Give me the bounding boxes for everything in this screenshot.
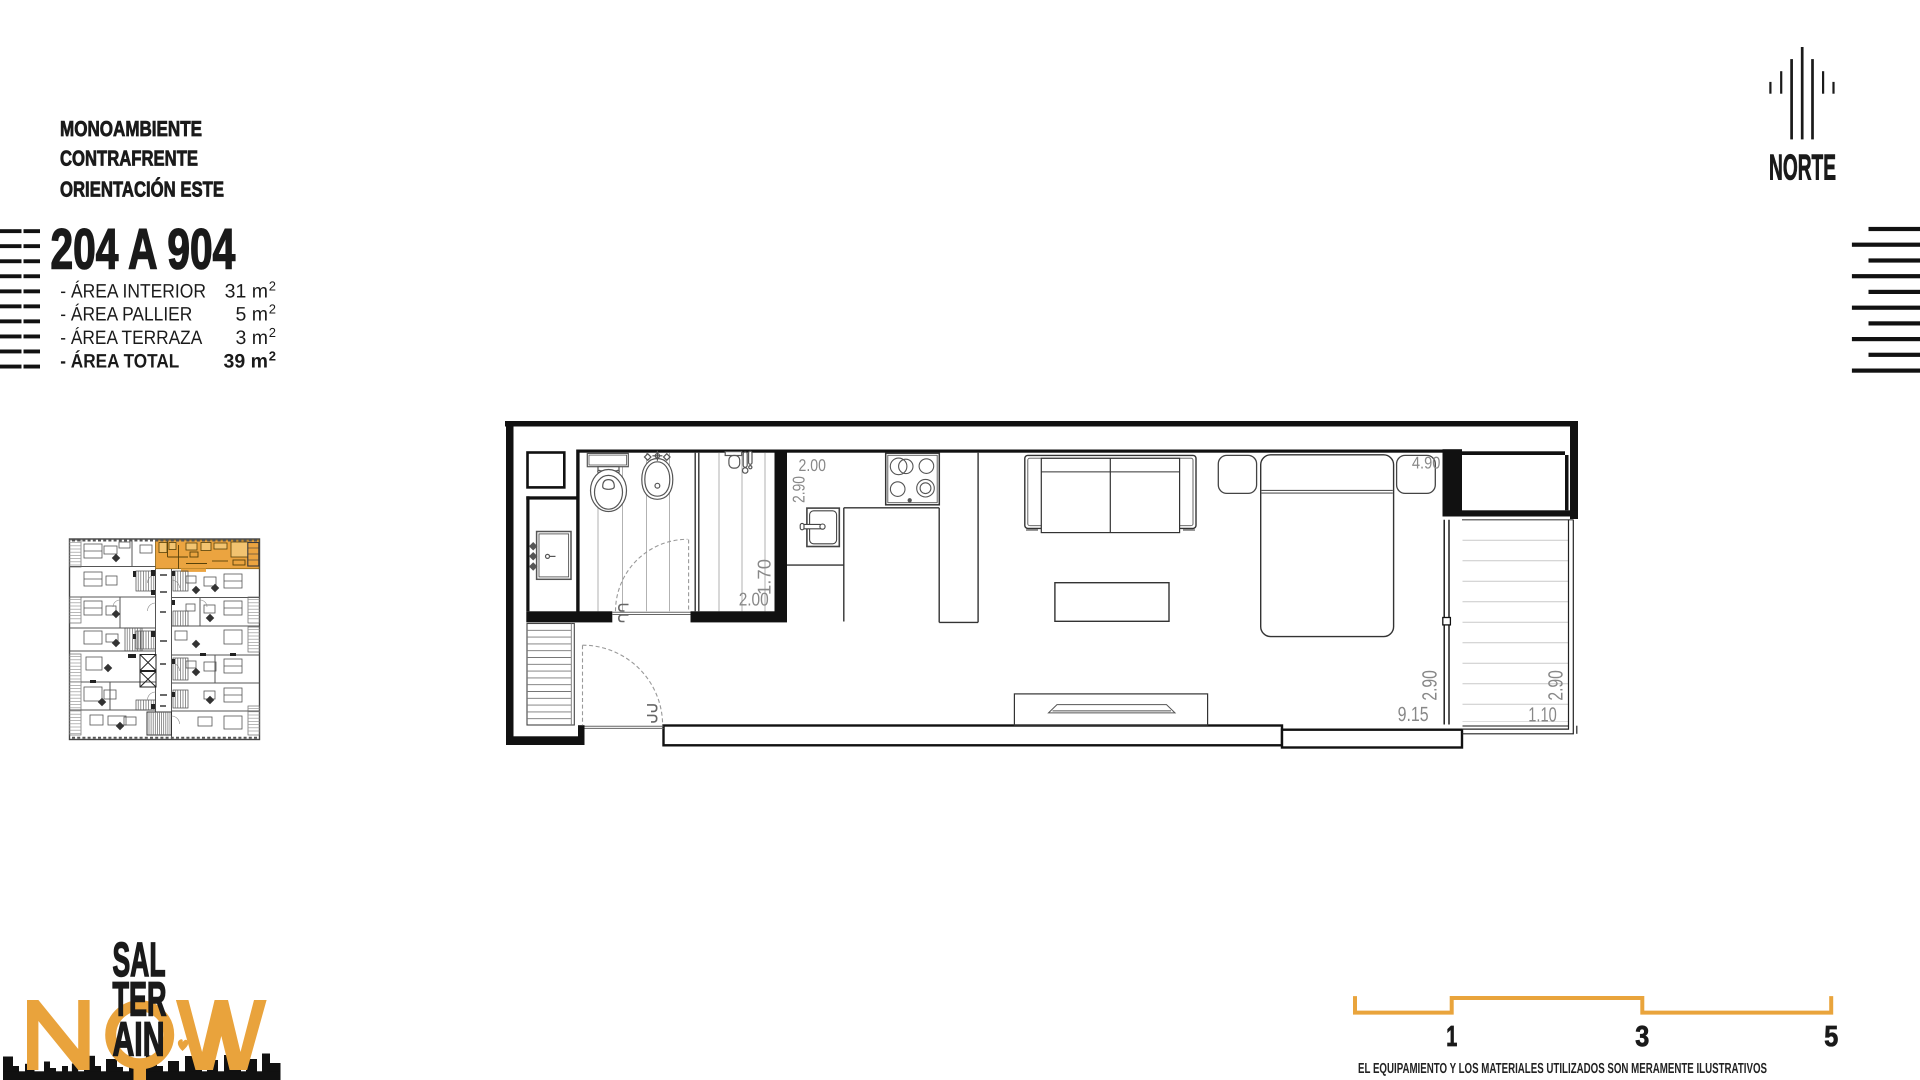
- svg-text:31 m: 31 m: [225, 280, 268, 302]
- svg-text:2.90: 2.90: [1419, 670, 1442, 700]
- svg-text:2.00: 2.00: [799, 456, 826, 475]
- svg-text:AIN: AIN: [113, 1014, 165, 1067]
- svg-text:- ÁREA TOTAL: - ÁREA TOTAL: [60, 349, 179, 372]
- svg-text:3: 3: [1635, 1021, 1649, 1053]
- svg-text:CONTRAFRENTE: CONTRAFRENTE: [60, 147, 198, 171]
- svg-text:2.00: 2.00: [739, 589, 769, 610]
- svg-text:ORIENTACIÓN ESTE: ORIENTACIÓN ESTE: [60, 176, 224, 201]
- svg-text:1: 1: [1446, 1021, 1457, 1053]
- svg-text:MONOAMBIENTE: MONOAMBIENTE: [60, 117, 202, 141]
- svg-text:2: 2: [269, 325, 276, 340]
- svg-text:2: 2: [269, 302, 276, 317]
- svg-text:9.15: 9.15: [1398, 703, 1429, 726]
- svg-text:204 A 904: 204 A 904: [51, 217, 236, 281]
- svg-text:- ÁREA PALLIER: - ÁREA PALLIER: [60, 304, 192, 326]
- svg-text:EL EQUIPAMIENTO Y LOS MATERIAL: EL EQUIPAMIENTO Y LOS MATERIALES UTILIZA…: [1358, 1061, 1767, 1077]
- svg-text:1.10: 1.10: [1528, 703, 1556, 726]
- svg-text:- ÁREA INTERIOR: - ÁREA INTERIOR: [60, 280, 206, 302]
- svg-text:- ÁREA TERRAZA: - ÁREA TERRAZA: [60, 327, 202, 349]
- svg-text:NORTE: NORTE: [1769, 147, 1836, 188]
- svg-text:39 m: 39 m: [224, 350, 268, 372]
- svg-text:5: 5: [1824, 1021, 1838, 1053]
- svg-text:3 m: 3 m: [235, 327, 268, 349]
- svg-text:2.90: 2.90: [1544, 670, 1567, 700]
- svg-text:5 m: 5 m: [235, 304, 268, 326]
- svg-text:4.90: 4.90: [1412, 454, 1441, 473]
- svg-text:2.90: 2.90: [790, 476, 809, 503]
- svg-text:2: 2: [269, 348, 276, 363]
- svg-text:2: 2: [269, 278, 276, 293]
